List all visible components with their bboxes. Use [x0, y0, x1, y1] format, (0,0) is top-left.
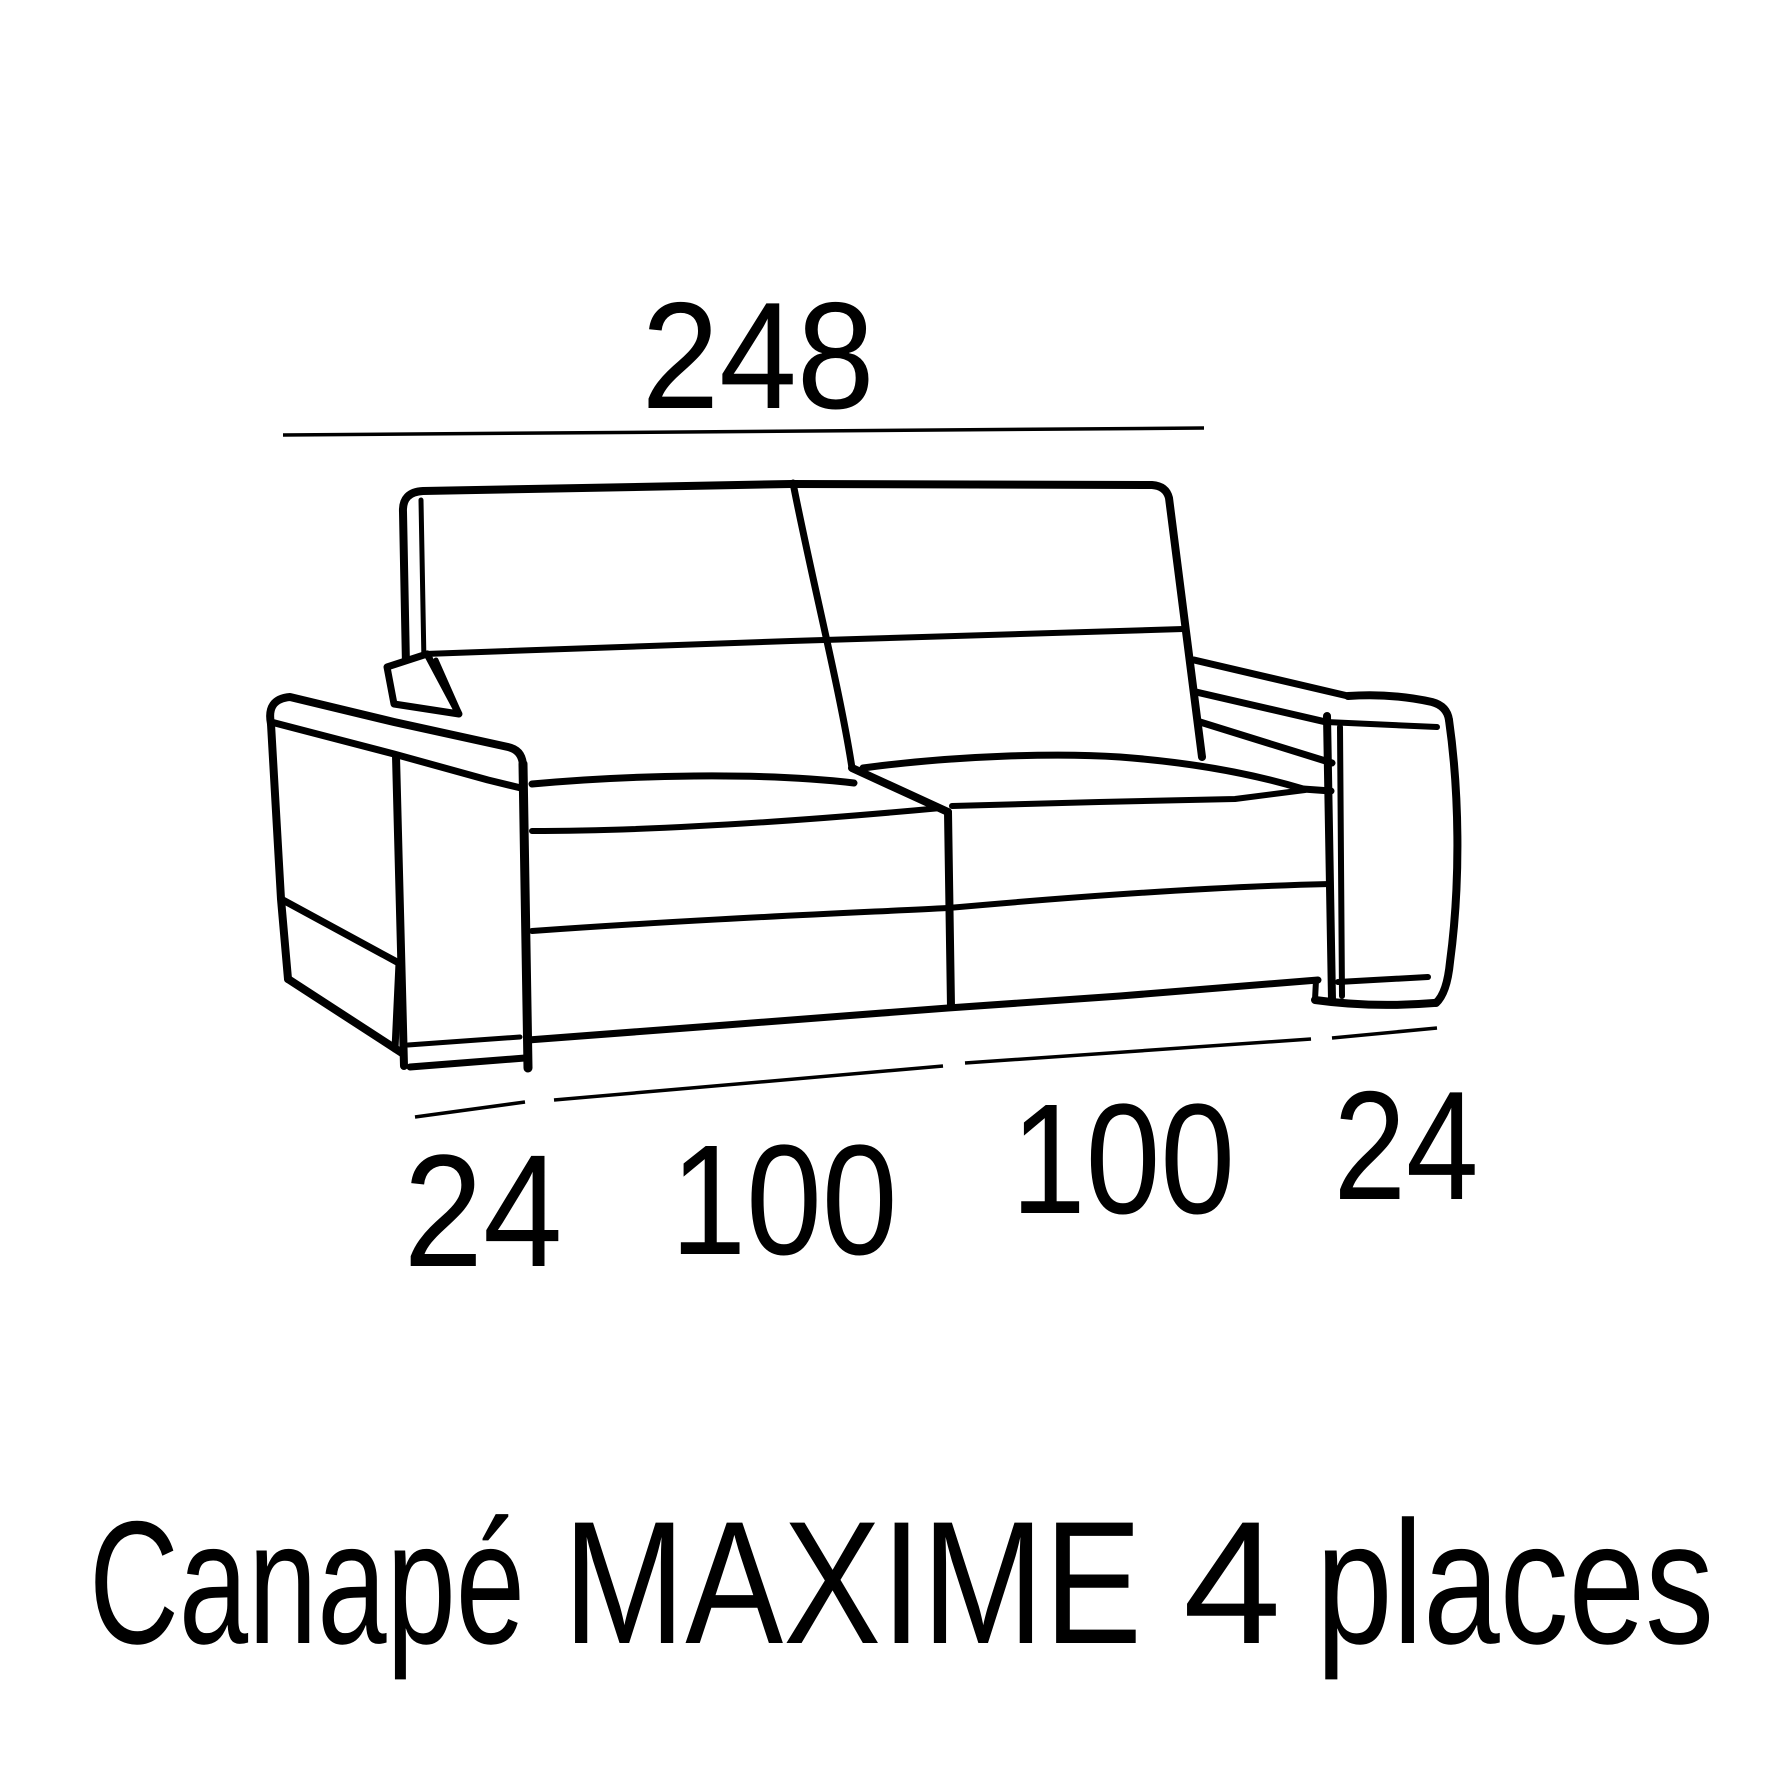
- svg-text:248: 248: [642, 271, 875, 441]
- svg-text:100: 100: [1011, 1072, 1235, 1247]
- svg-text:Canapé: Canapé: [89, 1486, 525, 1681]
- svg-text:MAXIME: MAXIME: [563, 1486, 1142, 1681]
- svg-text:places: places: [1316, 1486, 1714, 1681]
- svg-text:24: 24: [1334, 1059, 1479, 1232]
- svg-text:100: 100: [671, 1113, 898, 1288]
- svg-text:24: 24: [404, 1121, 563, 1300]
- svg-text:4: 4: [1183, 1486, 1281, 1681]
